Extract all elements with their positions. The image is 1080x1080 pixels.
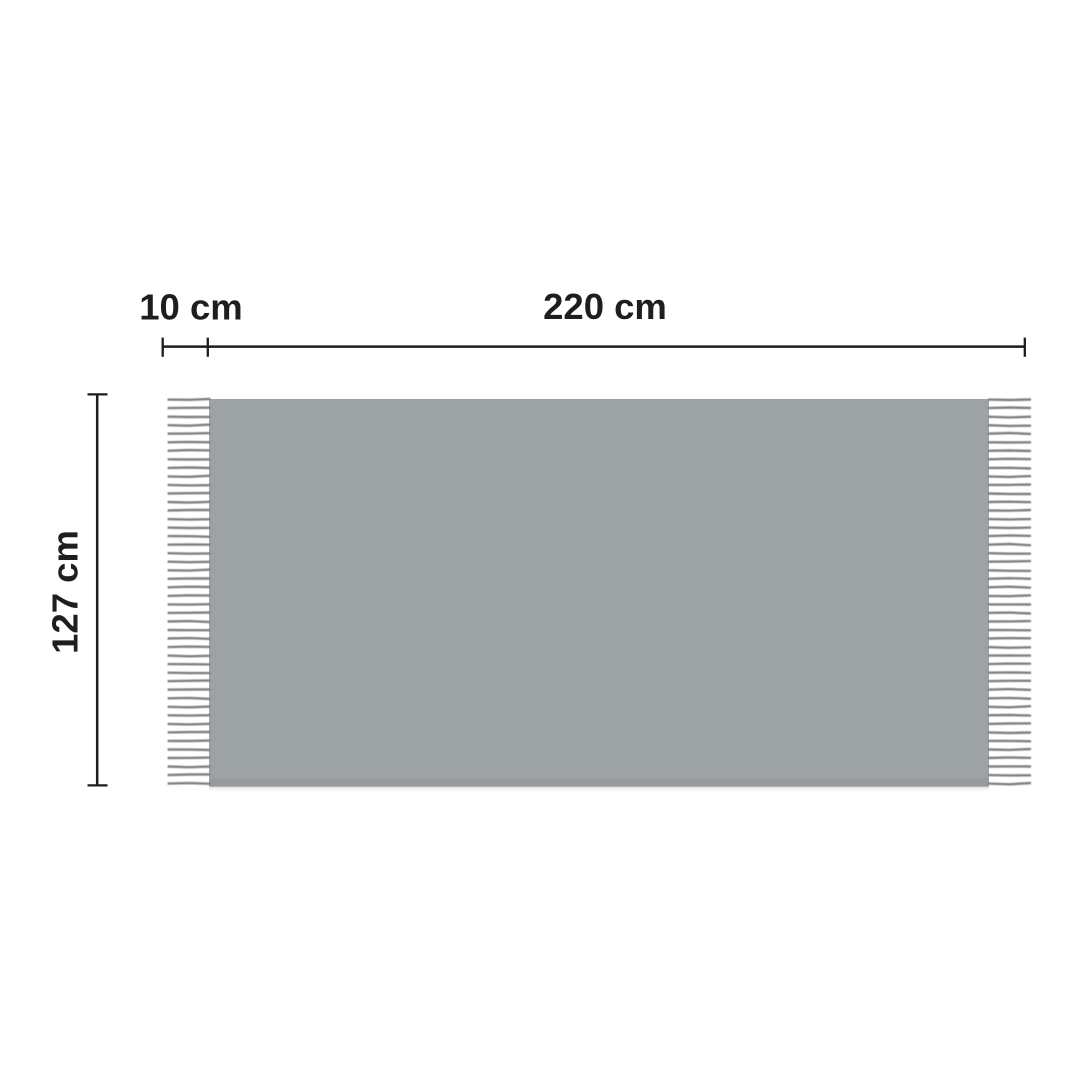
svg-text:220 cm: 220 cm (543, 286, 667, 327)
svg-text:127 cm: 127 cm (45, 530, 86, 654)
svg-text:10 cm: 10 cm (139, 287, 243, 328)
